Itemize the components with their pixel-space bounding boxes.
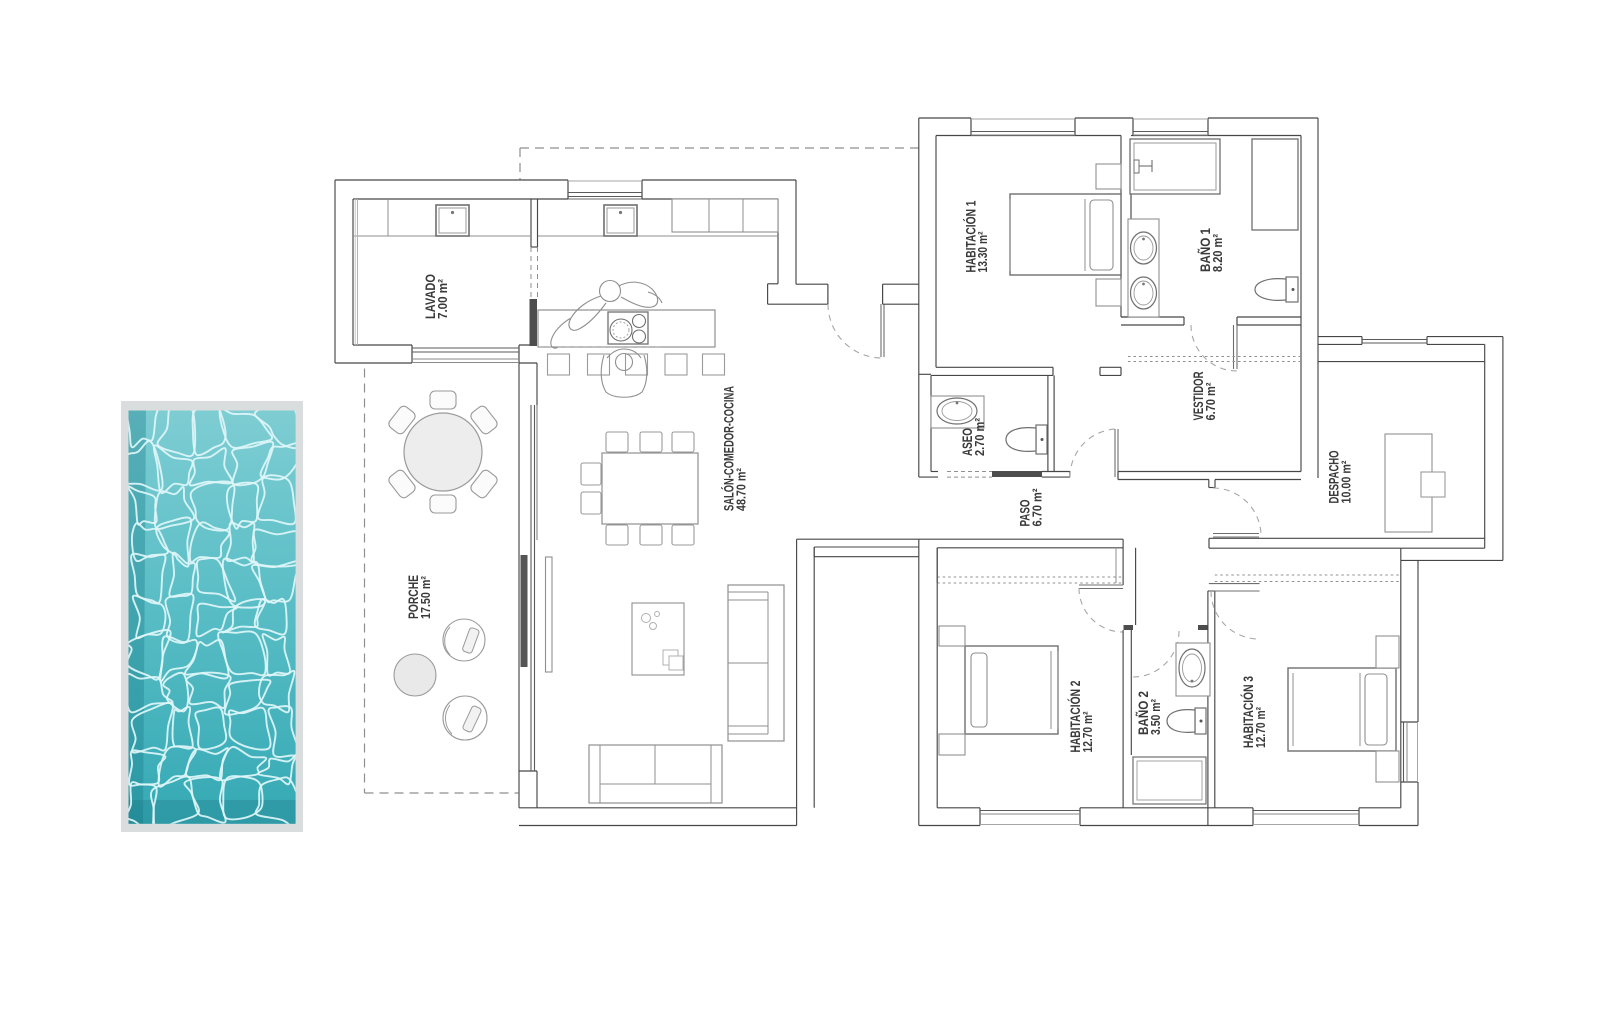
svg-text:6.70 m²: 6.70 m² <box>1029 488 1044 527</box>
svg-text:3.50 m²: 3.50 m² <box>1148 698 1163 735</box>
svg-text:12.70 m²: 12.70 m² <box>1080 711 1095 753</box>
svg-text:48.70 m²: 48.70 m² <box>733 467 748 511</box>
svg-text:10.00 m²: 10.00 m² <box>1338 460 1353 504</box>
svg-text:6.70 m²: 6.70 m² <box>1203 382 1218 421</box>
svg-text:8.20 m²: 8.20 m² <box>1210 233 1225 272</box>
svg-text:12.70 m²: 12.70 m² <box>1253 706 1268 748</box>
svg-text:2.70 m²: 2.70 m² <box>972 417 987 456</box>
svg-text:17.50 m²: 17.50 m² <box>418 575 433 619</box>
svg-text:13.30 m²: 13.30 m² <box>975 231 990 273</box>
svg-text:7.00 m²: 7.00 m² <box>435 278 450 319</box>
